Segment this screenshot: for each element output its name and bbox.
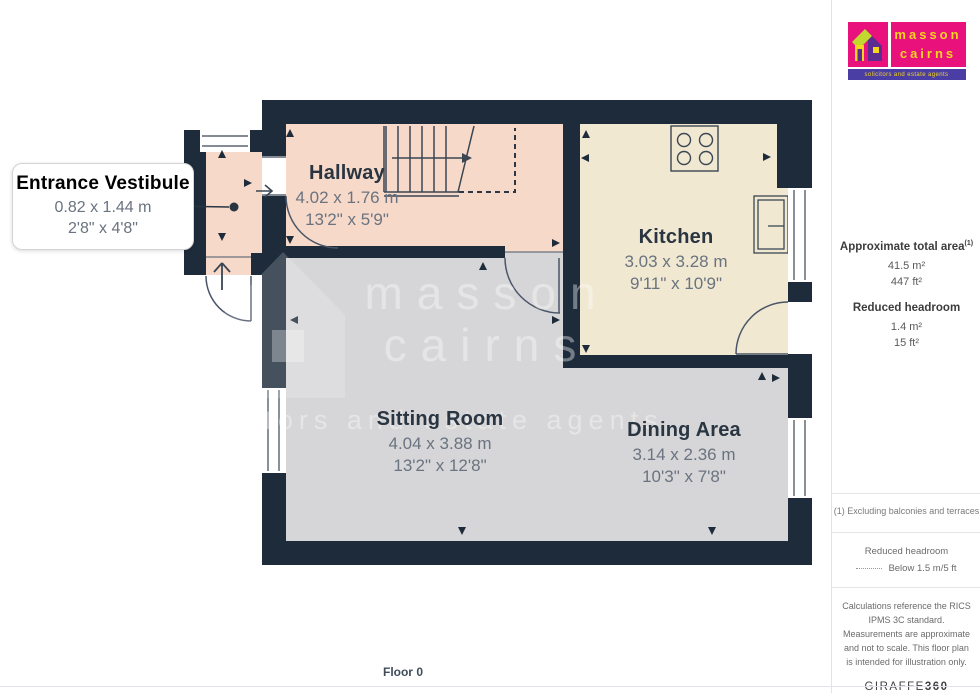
floorplan-page: { "branding": { "logo_line1": "masson", …	[0, 0, 980, 693]
opening-hallway-sitting	[505, 246, 563, 258]
divider	[832, 493, 980, 494]
back-door-gap	[788, 302, 812, 354]
room-name: Sitting Room	[377, 408, 504, 431]
logo-wordmark: masson cairns	[891, 22, 966, 67]
room-dimensions: 4.02 x 1.76 m 13'2" x 5'9"	[295, 187, 398, 232]
room-label-hallway: Hallway 4.02 x 1.76 m 13'2" x 5'9"	[295, 162, 398, 232]
footnote: (1) Excluding balconies and terraces	[832, 506, 980, 516]
info-sidebar: masson cairns solicitors and estate agen…	[831, 0, 980, 693]
opening-entrance	[206, 253, 251, 275]
area-ft2: 447 ft²	[832, 276, 980, 288]
headroom-m2: 1.4 m²	[832, 321, 980, 333]
room-label-kitchen: Kitchen 3.03 x 3.28 m 9'11" x 10'9"	[624, 226, 727, 296]
floor-label: Floor 0	[360, 665, 446, 679]
divider	[832, 587, 980, 588]
room-label-dining-area: Dining Area 3.14 x 2.36 m 10'3" x 7'8"	[627, 419, 741, 489]
masson-cairns-logo: masson cairns solicitors and estate agen…	[848, 22, 966, 80]
room-name: Entrance Vestibule	[15, 173, 191, 195]
disclaimer-text: Calculations reference the RICS IPMS 3C …	[842, 601, 971, 667]
room-label-sitting-room: Sitting Room 4.04 x 3.88 m 13'2" x 12'8"	[377, 408, 504, 478]
opening-vestibule-hallway	[262, 156, 286, 196]
disclaimer-block: Calculations reference the RICS IPMS 3C …	[832, 600, 980, 697]
window-vestibule-top	[200, 130, 250, 152]
headroom-ft2: 15 ft²	[832, 337, 980, 349]
logo-house-icon	[848, 22, 888, 67]
area-title: Approximate total area(1)	[832, 240, 980, 253]
room-name: Kitchen	[624, 226, 727, 249]
window-kitchen-right	[788, 188, 812, 282]
sink-unit-icon	[754, 196, 788, 253]
area-m2: 41.5 m²	[832, 260, 980, 272]
floor-plan: masson cairns solicitors and estate agen…	[0, 0, 832, 693]
legend-row: Below 1.5 m/5 ft	[832, 563, 980, 574]
legend-value: Below 1.5 m/5 ft	[888, 563, 956, 574]
window-dining-right	[788, 418, 812, 498]
room-dimensions: 3.14 x 2.36 m 10'3" x 7'8"	[627, 444, 741, 489]
giraffe360-brand: GIRAFFE360	[840, 679, 973, 697]
room-label-entrance-vestibule: Entrance Vestibule 0.82 x 1.44 m 2'8" x …	[12, 163, 194, 250]
legend-title: Reduced headroom	[832, 546, 980, 557]
divider	[832, 532, 980, 533]
leader-dot	[230, 203, 239, 212]
dotted-line-icon	[856, 567, 882, 569]
headroom-title: Reduced headroom	[832, 302, 980, 314]
room-name: Dining Area	[627, 419, 741, 442]
watermark-line1: masson	[364, 267, 609, 319]
area-summary: Approximate total area(1) 41.5 m² 447 ft…	[832, 240, 980, 353]
watermark-line2: cairns	[384, 319, 591, 371]
logo-tagline: solicitors and estate agents	[848, 69, 966, 80]
room-name: Hallway	[295, 162, 398, 185]
room-dimensions: 3.03 x 3.28 m 9'11" x 10'9"	[624, 251, 727, 296]
page-bottom-divider	[0, 686, 980, 687]
room-dimensions: 0.82 x 1.44 m 2'8" x 4'8"	[15, 197, 191, 239]
room-dimensions: 4.04 x 3.88 m 13'2" x 12'8"	[377, 433, 504, 478]
